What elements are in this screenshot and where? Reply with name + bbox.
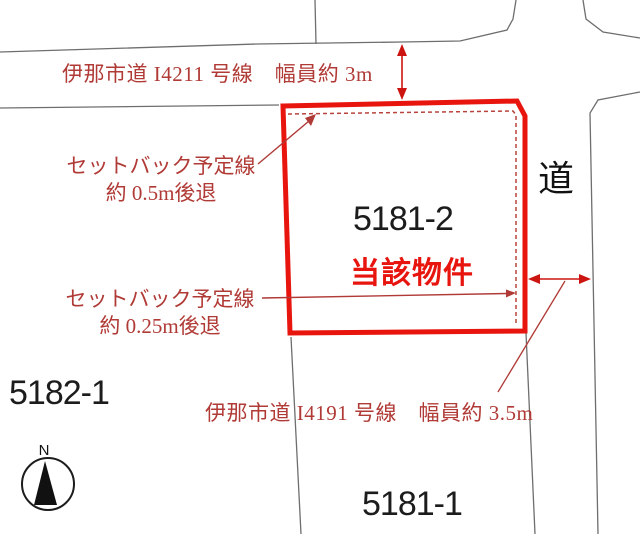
east-road-width-arrowhead-right	[579, 274, 591, 284]
compass-north-letter: N	[34, 442, 54, 459]
north-setback-label-line2: 約 0.5m後退	[50, 180, 272, 207]
north-parcel-boundary-line	[315, 0, 316, 44]
northeast-corner-road-line	[583, 0, 640, 38]
north-setback-label-line1: セットバック予定線	[50, 153, 272, 180]
west-parcel-number: 5182-1	[9, 374, 109, 413]
south-parcel-boundary-line	[291, 337, 301, 534]
east-setback-label-line2: 約 0.25m後退	[45, 313, 275, 340]
north-setback-leader-arrowhead	[305, 114, 316, 126]
subject-parcel-designation: 当該物件	[350, 248, 474, 292]
east-road-width-arrowhead-left	[528, 274, 540, 284]
east-setback-label: セットバック予定線 約 0.25m後退	[45, 286, 275, 340]
south-road-label-leader-line	[498, 281, 565, 392]
compass-needle-icon	[34, 461, 57, 505]
east-setback-label-line1: セットバック予定線	[45, 286, 275, 313]
north-road-width-arrowhead-up	[397, 44, 407, 56]
east-road-east-edge-line	[590, 92, 640, 534]
east-road-west-edge-line	[526, 333, 535, 534]
south-parcel-number: 5181-1	[362, 485, 462, 524]
east-setback-leader-arrowhead	[506, 290, 516, 298]
north-road-upper-edge-line	[0, 0, 516, 52]
east-road-label: 道	[538, 150, 574, 202]
subject-parcel-number: 5181-2	[353, 200, 453, 239]
site-plan-map: 伊那市道 I4211 号線 幅員約 3m セットバック予定線 約 0.5m後退 …	[0, 0, 640, 534]
north-road-lower-edge-line	[0, 105, 279, 108]
north-road-label: 伊那市道 I4211 号線 幅員約 3m	[62, 58, 373, 88]
east-setback-leader-line	[262, 294, 507, 299]
north-setback-label: セットバック予定線 約 0.5m後退	[50, 153, 272, 207]
south-road-label: 伊那市道 I4191 号線 幅員約 3.5m	[205, 397, 533, 427]
north-road-width-arrowhead-down	[397, 88, 407, 100]
